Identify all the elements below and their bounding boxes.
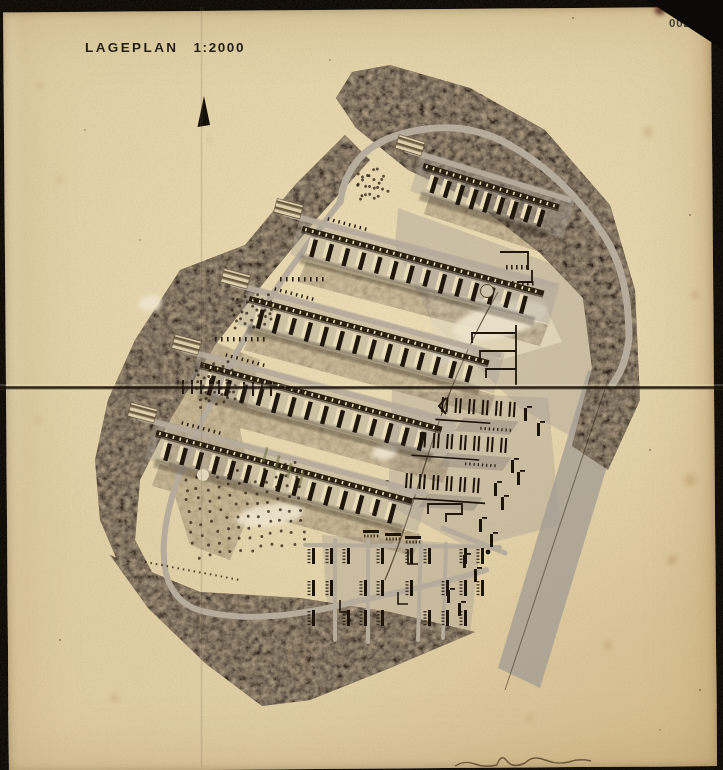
scanned-site-plan-sheet: LAGEPLAN1:2000 0026: [0, 0, 723, 770]
scale-label: 1:2000: [193, 40, 245, 55]
plan-title: LAGEPLAN: [85, 40, 178, 55]
fold-crease-horizontal: [0, 384, 723, 390]
roundabout-circle: [481, 285, 494, 298]
tree-dot: [486, 550, 491, 555]
clearing-circle: [197, 469, 209, 481]
title-block: LAGEPLAN1:2000: [85, 38, 245, 56]
tick-comb: [215, 337, 265, 342]
